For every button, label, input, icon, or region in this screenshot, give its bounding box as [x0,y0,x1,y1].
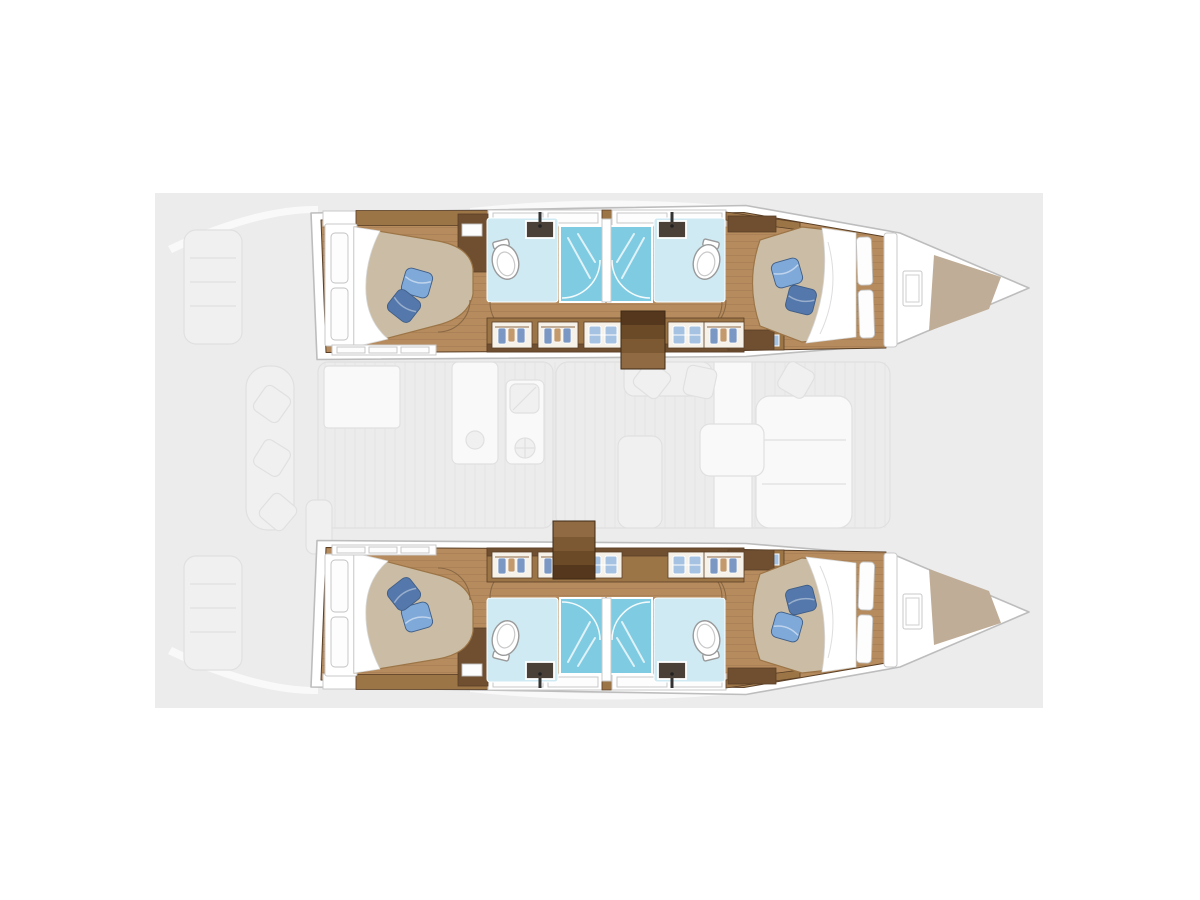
catamaran-floorplan [0,0,1200,900]
saloon-cabinet [618,436,662,528]
stern-platform [184,556,242,670]
floorplan-page [0,0,1200,900]
galley-sink [466,431,484,449]
saloon-sofa [756,396,852,528]
cockpit-table [324,366,400,428]
saloon-table [700,424,764,476]
stairs-icon-port [621,311,665,369]
stairs-icon-starboard [553,521,595,579]
chair-cushion [682,364,718,400]
stern-platform [184,230,242,344]
